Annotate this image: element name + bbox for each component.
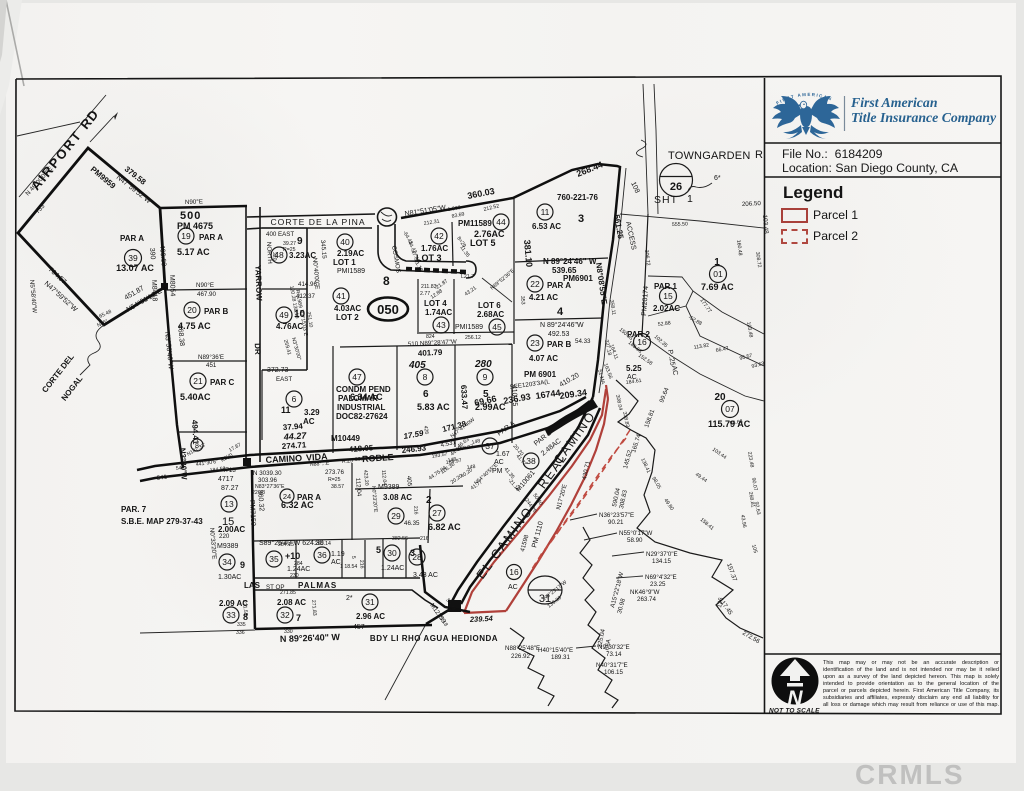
svg-text:PM11589: PM11589 [458,219,492,228]
svg-text:189.31: 189.31 [551,654,570,661]
svg-text:N81°51'05"W: N81°51'05"W [404,203,447,217]
svg-text:98.05: 98.05 [650,476,662,490]
svg-text:4.07 AC: 4.07 AC [529,354,558,363]
svg-text:106.15: 106.15 [604,669,623,676]
svg-text:157.37: 157.37 [725,562,738,583]
svg-text:8: 8 [423,372,428,382]
svg-text:K2(4): K2(4) [220,452,234,464]
svg-text:AC: AC [508,584,518,591]
svg-text:1.74AC: 1.74AC [425,308,452,317]
svg-text:8: 8 [383,274,390,288]
svg-text:206.50: 206.50 [742,200,762,208]
svg-text:N88°...E: N88°...E [310,461,330,468]
svg-text:PAR A: PAR A [547,281,571,290]
svg-text:220: 220 [219,533,230,540]
svg-text:158.81: 158.81 [643,408,656,429]
svg-text:4.75 AC: 4.75 AC [178,321,211,331]
svg-text:216: 216 [412,506,419,515]
svg-text:430.71: 430.71 [581,460,592,481]
svg-text:345.15: 345.15 [319,240,328,260]
svg-text:49.80: 49.80 [662,498,674,512]
svg-text:2.68AC: 2.68AC [477,310,504,319]
svg-text:134.15: 134.15 [652,558,671,565]
svg-text:113.82: 113.82 [693,342,709,351]
svg-text:510 N89°28'47"W: 510 N89°28'47"W [408,338,457,348]
svg-text:NK46°9"W: NK46°9"W [630,589,660,596]
svg-text:372.73: 372.73 [267,367,289,374]
svg-text:PM7150: PM7150 [248,500,256,527]
svg-text:3: 3 [410,548,415,558]
svg-text:15: 15 [663,291,673,301]
svg-text:4717: 4717 [218,476,234,483]
svg-text:PM 1110: PM 1110 [531,521,545,549]
svg-text:27: 27 [432,508,442,518]
svg-text:212.31: 212.31 [423,219,440,227]
svg-text:1 18.54: 1 18.54 [340,564,357,570]
svg-text:87.27: 87.27 [221,485,239,492]
svg-text:22: 22 [530,279,540,289]
svg-text:EAST: EAST [276,376,292,383]
svg-text:760-221-76: 760-221-76 [557,193,598,202]
svg-text:467.90: 467.90 [197,291,216,298]
svg-text:M8418: M8418 [150,280,158,302]
svg-text:P .25: P .25 [666,349,676,366]
svg-text:400 EAST: 400 EAST [266,231,294,238]
svg-text:6.32 AC: 6.32 AC [281,500,314,510]
svg-text:1.19: 1.19 [331,551,345,558]
svg-text:49: 49 [279,310,289,320]
svg-text:239.54: 239.54 [469,614,494,624]
svg-text:PAR A: PAR A [199,233,223,242]
svg-text:4: 4 [557,306,564,318]
svg-text:51.MA: 51.MA [596,369,606,386]
svg-text:38.57: 38.57 [331,484,344,490]
svg-text:148: 148 [471,438,481,446]
svg-text:N36°23'57"E: N36°23'57"E [599,512,634,519]
svg-text:1.24AC: 1.24AC [287,566,310,573]
svg-text:93.63: 93.63 [751,361,765,370]
svg-text:335: 335 [237,622,246,628]
svg-text:211.83: 211.83 [421,284,437,290]
svg-text:271.85: 271.85 [280,590,296,596]
svg-text:401.79: 401.79 [418,348,443,358]
svg-text:226.92: 226.92 [511,653,530,660]
svg-text:13.07 AC: 13.07 AC [116,263,154,273]
svg-text:49.44: 49.44 [694,472,708,484]
svg-text:N40°31'7"E: N40°31'7"E [596,662,628,669]
svg-text:PM 6901: PM 6901 [524,370,557,379]
svg-text:R=25: R=25 [283,247,296,253]
svg-text:ACCESS: ACCESS [624,221,637,251]
svg-text:33: 33 [226,610,236,620]
svg-text:17.59: 17.59 [403,429,425,441]
svg-text:733: 733 [34,203,46,216]
svg-text:358.11: 358.11 [608,299,617,315]
svg-text:360.03: 360.03 [466,186,495,201]
svg-text:M9389: M9389 [217,543,239,550]
svg-text:451: 451 [206,362,217,369]
svg-text:47: 47 [352,372,362,382]
svg-text:13: 13 [224,499,234,509]
svg-text:R:25: R:25 [342,458,353,465]
svg-text:PAR A: PAR A [120,234,144,243]
svg-text:105: 105 [750,544,758,554]
svg-text:1: 1 [687,193,693,205]
svg-text:418.05: 418.05 [349,443,375,454]
svg-text:41: 41 [336,291,346,301]
svg-text:17.87: 17.87 [228,442,242,454]
svg-text:2.02AC: 2.02AC [653,304,680,313]
svg-text:N 3039.30: N 3039.30 [253,470,282,477]
svg-text:263.74: 263.74 [637,596,656,603]
svg-text:308.72: 308.72 [754,251,762,268]
svg-text:9: 9 [297,236,303,247]
svg-text:1.24AC: 1.24AC [381,565,404,572]
svg-text:26: 26 [670,181,682,193]
svg-text:LOT 6: LOT 6 [478,301,501,310]
svg-text:92.63: 92.63 [753,501,761,515]
svg-text:16: 16 [509,567,519,577]
svg-text:N55°0'17"W: N55°0'17"W [619,530,653,537]
svg-text:23: 23 [530,338,540,348]
svg-text:N89°52'36"E: N89°52'36"E [489,268,516,292]
svg-text:73.14: 73.14 [606,651,622,658]
svg-text:405: 405 [405,476,413,487]
svg-text:NOGAL: NOGAL [60,374,85,402]
svg-text:11.35: 11.35 [458,245,470,259]
svg-text:112.04: 112.04 [354,478,363,498]
svg-text:PAR B: PAR B [204,307,229,316]
svg-text:38: 38 [526,456,536,466]
svg-text:29: 29 [391,511,401,521]
svg-text:PAR. 7: PAR. 7 [121,505,147,514]
svg-text:45: 45 [492,322,502,332]
svg-text:4.76AC: 4.76AC [276,322,303,331]
svg-text:N29°37'0"E: N29°37'0"E [646,551,678,558]
svg-text:457: 457 [353,624,365,631]
svg-text:35: 35 [269,554,279,564]
svg-text:1.76AC: 1.76AC [421,244,448,253]
svg-text:LOT 2: LOT 2 [336,313,359,322]
svg-text:4.03AC: 4.03AC [334,304,361,313]
svg-text:34: 34 [222,557,232,567]
svg-text:103.48: 103.48 [761,215,770,235]
svg-text:-21.18: -21.18 [506,477,520,492]
svg-text:2*: 2* [346,595,353,602]
svg-text:6.34 AC: 6.34 AC [350,392,383,402]
svg-text:R: R [755,149,763,161]
svg-text:M8054: M8054 [168,275,176,297]
svg-text:306.72: 306.72 [643,250,651,267]
svg-text:36: 36 [317,550,327,560]
svg-text:223.48: 223.48 [746,451,755,468]
svg-text:YARROW: YARROW [253,265,263,301]
svg-text:308.04: 308.04 [614,394,623,411]
svg-text:N9°30'32"E: N9°30'32"E [598,644,630,651]
svg-text:103.44: 103.44 [711,447,728,461]
svg-text:DOC82-27624: DOC82-27624 [336,412,388,421]
svg-text:07: 07 [725,404,735,414]
svg-text:284: 284 [294,561,303,567]
svg-text:PMI1589: PMI1589 [455,324,483,331]
svg-text:19: 19 [181,231,191,241]
svg-text:381.10: 381.10 [522,239,534,267]
svg-text:5.25: 5.25 [626,364,642,373]
svg-text:31: 31 [365,597,375,607]
svg-text:303.96: 303.96 [258,477,277,484]
svg-text:1: 1 [714,257,720,268]
svg-text:11: 11 [541,207,550,217]
svg-text:H40°15'40"E: H40°15'40"E [538,647,573,654]
svg-text:N90°E: N90°E [196,282,214,289]
svg-text:TOWNGARDEN: TOWNGARDEN [668,150,750,162]
svg-text:N69°4'32"E: N69°4'32"E [645,574,677,581]
svg-text:21: 21 [193,376,203,386]
svg-text:11: 11 [281,405,291,415]
svg-text:30: 30 [387,548,397,558]
svg-text:PAR B: PAR B [547,340,572,349]
svg-text:2.08 AC: 2.08 AC [277,598,306,607]
svg-text:382.56: 382.56 [392,536,408,542]
svg-text:LOT 5: LOT 5 [470,238,496,248]
svg-text:LOT 4: LOT 4 [424,299,447,308]
svg-text:555.50: 555.50 [672,221,688,228]
svg-text:M9389: M9389 [378,484,400,491]
svg-text:269.41: 269.41 [282,339,292,356]
svg-text:492.53: 492.53 [548,331,570,338]
svg-text:6: 6 [292,394,297,404]
svg-text:N90°E: N90°E [185,198,203,206]
svg-text:M10449: M10449 [331,434,360,443]
svg-text:SHT: SHT [654,194,678,206]
svg-text:PALMAS: PALMAS [298,581,337,590]
svg-text:9: 9 [483,372,488,382]
svg-text:212.52: 212.52 [483,203,500,213]
svg-text:AC: AC [303,417,315,426]
svg-text:273.76: 273.76 [325,469,344,476]
svg-text:280: 280 [474,359,492,370]
svg-text:S.B.E. MAP 279-37-43: S.B.E. MAP 279-37-43 [121,517,203,526]
svg-text:184.61: 184.61 [625,378,642,386]
svg-text:268.44: 268.44 [575,159,604,179]
svg-text:32: 32 [280,610,290,620]
svg-text:52.88: 52.88 [657,320,671,328]
svg-text:CAMINO: CAMINO [265,453,302,465]
svg-text:R=25: R=25 [328,477,341,483]
svg-text:INDUSTRIAL: INDUSTRIAL [337,403,386,412]
svg-text:N3°56'40"W: N3°56'40"W [163,331,175,370]
svg-text:40: 40 [340,237,350,247]
svg-text:138.41: 138.41 [639,457,651,474]
svg-text:3: 3 [578,213,584,225]
svg-text:N8°08'55"E: N8°08'55"E [594,262,609,306]
svg-text:547: 547 [175,465,185,472]
svg-text:216: 216 [358,560,365,569]
svg-text:2.77: 2.77 [420,291,430,297]
svg-text:LOT 1: LOT 1 [333,258,356,267]
svg-text:2.96 AC: 2.96 AC [356,612,385,621]
svg-text:38.57: 38.57 [355,456,368,463]
svg-text:390: 390 [148,248,156,260]
svg-text:230: 230 [290,573,299,579]
svg-text:1.67: 1.67 [496,451,510,458]
svg-text:336: 336 [236,630,245,636]
svg-text:158.41: 158.41 [699,517,715,532]
svg-text:102.35: 102.35 [653,334,669,349]
svg-text:3.43 AC: 3.43 AC [413,572,438,579]
svg-text:PAR C: PAR C [210,378,235,387]
svg-text:44: 44 [496,217,506,227]
svg-text:66.47: 66.47 [715,346,729,354]
svg-text:43.96: 43.96 [739,514,747,528]
svg-text:466.60: 466.60 [158,245,167,267]
svg-text:271.83: 271.83 [310,600,317,616]
svg-text:95.57: 95.57 [739,353,753,362]
svg-text:99.64: 99.64 [658,386,671,403]
svg-text:284.15: 284.15 [278,542,294,548]
svg-text:PMI1589: PMI1589 [337,268,365,275]
svg-text:23.25: 23.25 [650,581,666,588]
svg-text:N47°59'52"W: N47°59'52"W [43,280,80,314]
svg-text:PAR 1: PAR 1 [654,282,678,291]
svg-text:90.21: 90.21 [608,519,624,526]
svg-text:7.69 AC: 7.69 AC [701,282,734,292]
svg-text:423.20: 423.20 [362,470,369,486]
svg-text:22.83: 22.83 [252,490,265,496]
svg-text:265.14: 265.14 [315,541,331,547]
svg-text:353: 353 [519,296,526,305]
svg-text:2.19AC: 2.19AC [337,249,364,258]
svg-text:LAS: LAS [244,581,261,590]
svg-text:5.17 AC: 5.17 AC [177,247,210,257]
svg-text:N88°25'48"E: N88°25'48"E [505,645,540,652]
svg-text:37: 37 [485,441,495,451]
svg-text:54.33: 54.33 [575,338,591,345]
svg-text:N 89°24'46"W: N 89°24'46"W [540,321,584,329]
svg-text:COSMOS: COSMOS [390,245,402,273]
svg-text:41598: 41598 [519,534,530,553]
svg-text:2: 2 [426,495,432,506]
svg-text:3.29: 3.29 [304,408,320,417]
svg-text:541: 541 [156,474,168,482]
svg-text:PAR A: PAR A [496,420,517,437]
svg-text:73.18: 73.18 [436,614,448,628]
svg-text:N17°20'E: N17°20'E [555,484,568,511]
svg-text:160.48: 160.48 [735,240,743,257]
svg-text:43.21: 43.21 [464,285,478,297]
svg-text:RD: RD [77,106,102,132]
svg-text:DR: DR [253,343,262,355]
svg-text:7: 7 [296,613,301,623]
svg-text:274.71: 274.71 [282,440,308,451]
svg-text:5.40AC: 5.40AC [180,392,211,402]
svg-text:272.56: 272.56 [741,630,761,646]
svg-text:N3°30'00": N3°30'00" [290,337,302,361]
svg-text:BDY LI RHO AGUA HEDIONDA: BDY LI RHO AGUA HEDIONDA [370,634,498,643]
svg-text:5: 5 [376,545,381,555]
svg-text:58.90: 58.90 [627,537,643,544]
svg-text:330: 330 [284,629,293,635]
svg-text:+10: +10 [285,551,300,561]
svg-text:N5°58'40"W: N5°58'40"W [28,280,38,314]
svg-text:494.41: 494.41 [190,420,200,445]
svg-text:165.74: 165.74 [630,433,643,454]
svg-text:4.531: 4.531 [440,439,457,449]
svg-text:6.82 AC: 6.82 AC [428,522,461,532]
svg-text:405: 405 [408,360,426,371]
svg-text:CORTE DE LA PINA: CORTE DE LA PINA [270,217,365,227]
svg-text:103.48: 103.48 [745,321,754,338]
svg-text:410.20: 410.20 [559,372,581,389]
svg-text:6*: 6* [714,175,721,182]
svg-text:PM20174: PM20174 [641,286,650,316]
svg-text:PM 4675: PM 4675 [177,221,213,231]
svg-text:177.77: 177.77 [698,298,712,315]
svg-text:5: 5 [350,556,356,560]
svg-text:39: 39 [128,253,138,263]
svg-text:L21 7: L21 7 [461,274,474,280]
svg-text:N89°36'E: N89°36'E [198,354,224,361]
svg-text:050: 050 [377,302,399,317]
svg-text:3.08 AC: 3.08 AC [383,493,412,502]
svg-text:N 89°24'46" W: N 89°24'46" W [543,257,597,266]
svg-text:20: 20 [187,305,197,315]
svg-text:1.30AC: 1.30AC [218,574,241,581]
svg-text:46.35: 46.35 [404,520,420,527]
svg-text:01: 01 [713,269,723,279]
svg-text:9: 9 [240,560,245,570]
svg-text:108: 108 [629,181,640,195]
svg-text:633.47: 633.47 [459,385,469,410]
svg-text:6.53 AC: 6.53 AC [532,222,561,231]
svg-text:20: 20 [714,392,726,403]
svg-text:5.83 AC: 5.83 AC [417,402,450,412]
svg-text:NOT TO SCALE: NOT TO SCALE [769,708,820,715]
svg-text:216: 216 [420,536,429,542]
svg-text:42: 42 [434,231,444,241]
svg-text:90.07: 90.07 [750,477,758,491]
svg-text:6: 6 [423,389,429,400]
svg-text:16744: 16744 [535,388,561,401]
svg-text:43: 43 [436,320,446,330]
svg-text:AC: AC [670,365,679,376]
svg-text:256.12: 256.12 [465,335,481,341]
svg-text:320: 320 [271,252,277,261]
svg-text:4.21 AC: 4.21 AC [529,293,558,302]
